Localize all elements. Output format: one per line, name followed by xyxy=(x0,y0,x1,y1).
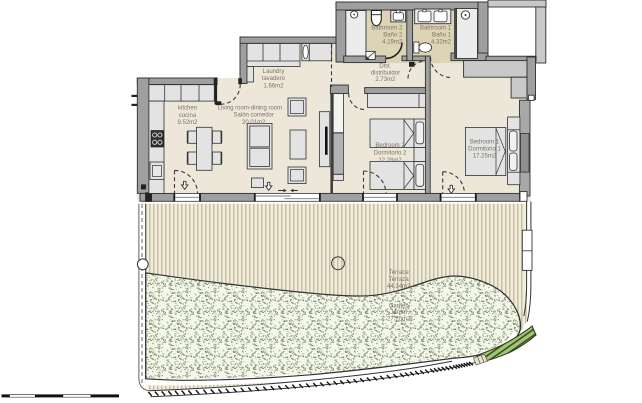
svg-text:Jardín: Jardín xyxy=(390,310,407,316)
svg-text:Garden: Garden xyxy=(389,303,409,309)
svg-text:Bathroom 1: Bathroom 1 xyxy=(420,25,452,31)
svg-text:kitchen: kitchen xyxy=(178,106,197,112)
svg-text:Dist.: Dist. xyxy=(379,63,391,69)
svg-text:4.19m2: 4.19m2 xyxy=(382,40,403,46)
svg-text:17.25m2: 17.25m2 xyxy=(473,154,497,160)
svg-text:Dormitorio 2: Dormitorio 2 xyxy=(374,150,407,156)
svg-text:2.73m2: 2.73m2 xyxy=(375,77,396,83)
svg-text:20.01m2: 20.01m2 xyxy=(242,120,266,126)
svg-text:Dormitorio 1: Dormitorio 1 xyxy=(468,147,501,153)
svg-text:12.28m2: 12.28m2 xyxy=(378,158,402,164)
svg-text:1.66m2: 1.66m2 xyxy=(263,83,284,89)
svg-text:44.34m2: 44.34m2 xyxy=(387,284,411,290)
svg-text:4.32m2: 4.32m2 xyxy=(431,40,452,46)
svg-text:Baño 1: Baño 1 xyxy=(432,32,452,38)
svg-text:27.70m2: 27.70m2 xyxy=(387,317,411,323)
svg-text:lavadero: lavadero xyxy=(262,76,286,82)
svg-text:Bedroom 1: Bedroom 1 xyxy=(470,140,500,146)
svg-text:Terraza: Terraza xyxy=(389,277,410,283)
svg-text:9.52m2: 9.52m2 xyxy=(177,120,198,126)
svg-text:distribuidor: distribuidor xyxy=(371,70,400,76)
svg-text:Laundry: Laundry xyxy=(263,69,285,75)
svg-text:Bedroom 2: Bedroom 2 xyxy=(375,143,405,149)
svg-text:Bathroom 2: Bathroom 2 xyxy=(371,25,403,31)
svg-text:Baño 2: Baño 2 xyxy=(383,32,403,38)
svg-text:Living room-dining room: Living room-dining room xyxy=(218,106,282,112)
svg-text:Salón comedor: Salón comedor xyxy=(234,113,274,119)
svg-text:Terrace: Terrace xyxy=(389,270,410,276)
svg-text:cocina: cocina xyxy=(179,113,197,119)
